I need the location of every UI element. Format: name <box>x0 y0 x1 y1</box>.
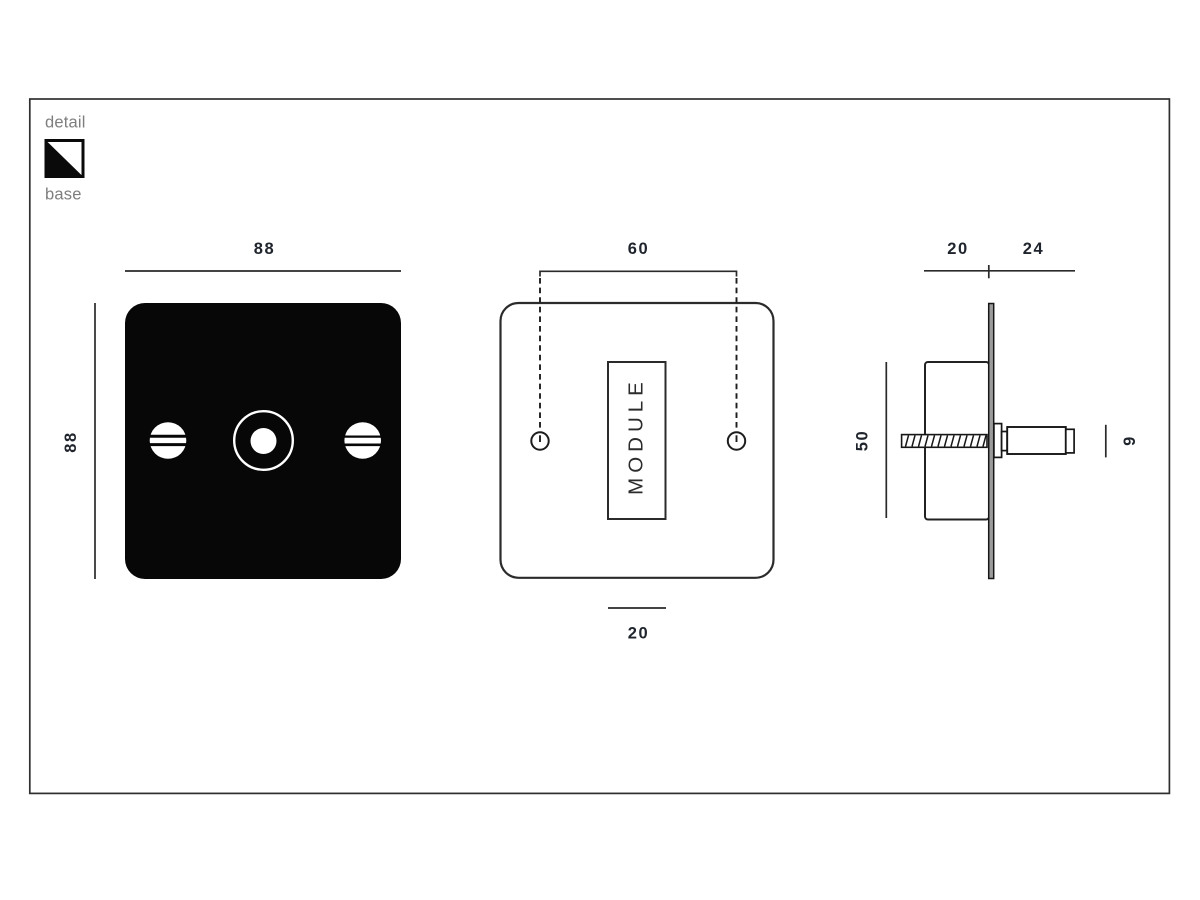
svg-text:88: 88 <box>254 240 276 258</box>
svg-text:detail: detail <box>45 114 86 132</box>
svg-text:60: 60 <box>628 240 650 258</box>
svg-text:MODULE: MODULE <box>625 377 648 495</box>
svg-text:88: 88 <box>62 431 80 453</box>
svg-text:base: base <box>45 186 82 204</box>
svg-text:50: 50 <box>854 430 872 452</box>
svg-text:20: 20 <box>947 240 969 258</box>
svg-text:24: 24 <box>1023 240 1045 258</box>
svg-text:9: 9 <box>1121 435 1139 446</box>
svg-text:20: 20 <box>628 625 650 643</box>
